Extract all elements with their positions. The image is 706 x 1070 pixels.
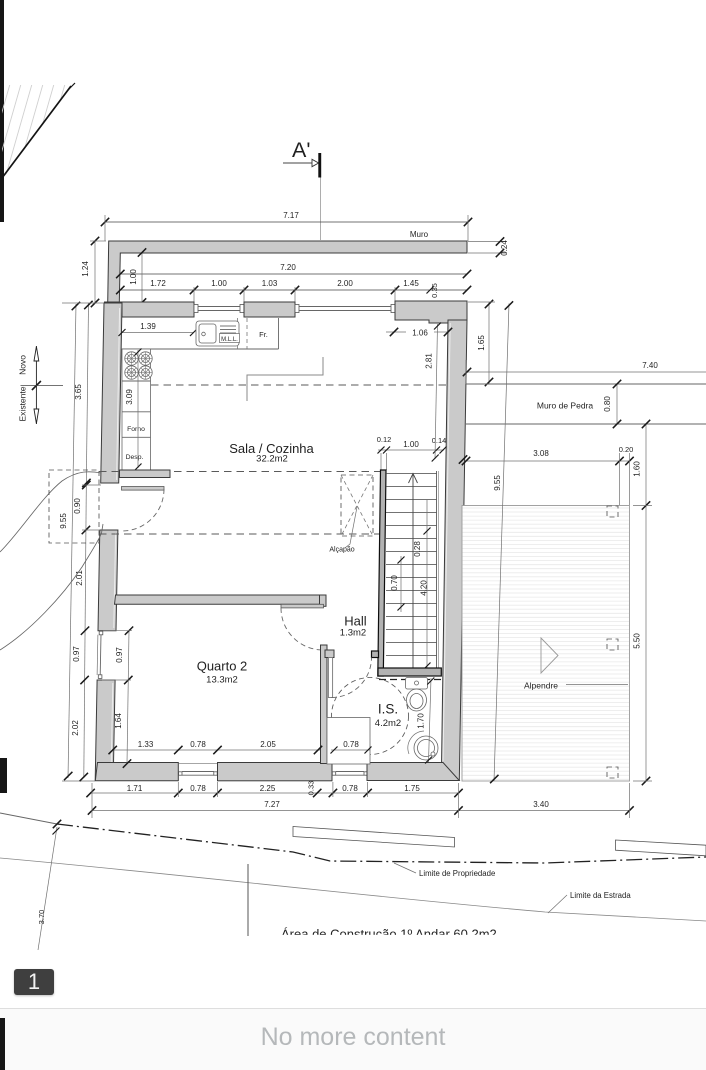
svg-text:Quarto 2: Quarto 2 (197, 659, 248, 674)
svg-text:0.12: 0.12 (377, 435, 392, 444)
svg-text:1.06: 1.06 (412, 329, 428, 338)
svg-text:1.3m2: 1.3m2 (340, 628, 366, 639)
svg-text:Alçapão: Alçapão (329, 547, 354, 554)
svg-text:1.00: 1.00 (129, 269, 138, 285)
svg-text:1.45: 1.45 (403, 279, 419, 288)
svg-text:M.L.L.: M.L.L. (221, 337, 238, 343)
svg-text:4.20: 4.20 (420, 580, 429, 596)
svg-text:Alpendre: Alpendre (524, 681, 558, 691)
svg-text:4.2m2: 4.2m2 (375, 718, 401, 729)
svg-text:2.05: 2.05 (260, 740, 276, 749)
svg-text:7.27: 7.27 (264, 800, 280, 809)
svg-text:1.64: 1.64 (114, 713, 123, 729)
svg-text:0.80: 0.80 (603, 396, 612, 412)
svg-text:2.02: 2.02 (71, 720, 80, 736)
svg-text:Fr.: Fr. (259, 330, 268, 339)
svg-text:3.08: 3.08 (533, 449, 549, 458)
svg-text:1.33: 1.33 (138, 740, 154, 749)
svg-text:I.S.: I.S. (378, 702, 398, 717)
svg-text:Limite de Propriedade: Limite de Propriedade (419, 869, 495, 878)
svg-text:3.70: 3.70 (37, 910, 46, 925)
svg-text:7.17: 7.17 (283, 211, 299, 220)
svg-text:Muro: Muro (410, 230, 429, 239)
svg-text:2.81: 2.81 (425, 353, 434, 369)
svg-text:1.65: 1.65 (477, 335, 486, 351)
svg-text:0.78: 0.78 (190, 740, 206, 749)
svg-text:Muro de Pedra: Muro de Pedra (537, 401, 593, 411)
svg-text:1.00: 1.00 (403, 440, 419, 449)
svg-text:1.75: 1.75 (404, 784, 420, 793)
svg-text:13.3m2: 13.3m2 (206, 675, 238, 686)
svg-text:0.14: 0.14 (432, 436, 447, 445)
svg-text:0.24: 0.24 (500, 240, 509, 256)
svg-text:1.72: 1.72 (150, 279, 166, 288)
svg-text:1.39: 1.39 (140, 322, 156, 331)
svg-text:2.25: 2.25 (260, 784, 276, 793)
svg-text:32.2m2: 32.2m2 (256, 454, 288, 465)
svg-text:0.97: 0.97 (115, 647, 124, 663)
svg-text:7.20: 7.20 (280, 263, 296, 272)
svg-text:0.78: 0.78 (190, 784, 206, 793)
svg-text:1.60: 1.60 (633, 461, 642, 477)
svg-text:0.20: 0.20 (619, 445, 634, 454)
svg-text:1.24: 1.24 (81, 261, 90, 277)
svg-text:Existente: Existente (18, 386, 28, 421)
svg-text:0.97: 0.97 (72, 646, 81, 662)
svg-text:0.35: 0.35 (430, 283, 439, 298)
svg-text:1.00: 1.00 (211, 279, 227, 288)
svg-text:0.33: 0.33 (307, 781, 316, 796)
svg-text:3.09: 3.09 (125, 389, 134, 405)
svg-text:3.65: 3.65 (74, 384, 83, 400)
svg-text:Desp.: Desp. (126, 454, 144, 461)
svg-text:0.78: 0.78 (343, 740, 359, 749)
svg-text:Forno: Forno (127, 426, 145, 433)
svg-text:1.03: 1.03 (262, 279, 278, 288)
svg-text:9.55: 9.55 (493, 475, 502, 491)
svg-text:3.40: 3.40 (533, 800, 549, 809)
svg-text:Hall: Hall (344, 614, 367, 629)
svg-text:0.70: 0.70 (390, 575, 399, 591)
svg-text:2.01: 2.01 (75, 570, 84, 586)
svg-text:0.28: 0.28 (413, 541, 422, 557)
svg-text:Limite da Estrada: Limite da Estrada (570, 891, 631, 900)
svg-text:1.71: 1.71 (127, 784, 143, 793)
svg-text:2.00: 2.00 (337, 279, 353, 288)
svg-text:5.50: 5.50 (633, 633, 642, 649)
svg-text:9.55: 9.55 (59, 513, 68, 529)
svg-text:0.90: 0.90 (73, 498, 82, 514)
svg-text:7.40: 7.40 (642, 361, 658, 370)
svg-text:1.70: 1.70 (417, 713, 426, 729)
svg-text:0.78: 0.78 (342, 784, 358, 793)
svg-text:A': A' (292, 138, 310, 162)
svg-text:Novo: Novo (18, 355, 28, 375)
